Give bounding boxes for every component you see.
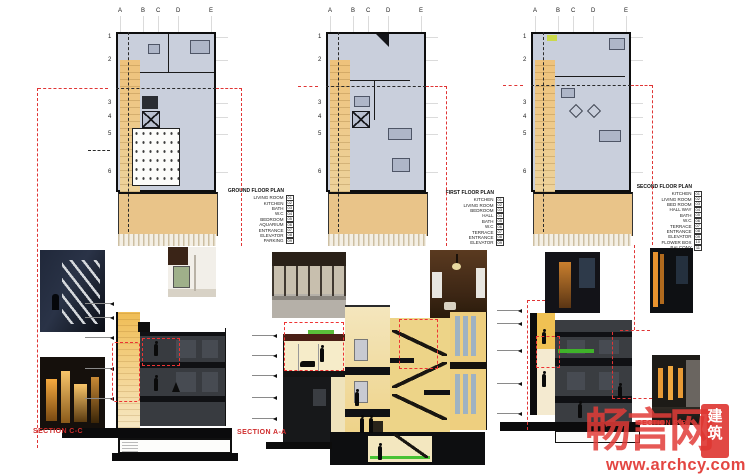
- interior-wall: [140, 72, 214, 73]
- stair-void: [352, 111, 370, 128]
- legend-second-floor: SECOND FLOOR PLAN KITCHEN 01 LIVING ROOM…: [622, 184, 702, 250]
- stair-treads: [62, 260, 100, 324]
- level-marker: [85, 337, 113, 338]
- window-strip: [455, 374, 460, 414]
- section-reference-line: [631, 85, 652, 86]
- grid-letter: D: [386, 8, 390, 14]
- legend-title: FIRST FLOOR PLAN: [424, 190, 504, 196]
- photo-dark-stair: [545, 252, 600, 313]
- table-furniture: [392, 158, 410, 172]
- legend-item-label: BATH: [272, 206, 284, 211]
- lit-doorway: [559, 262, 571, 308]
- photo-reference-line: [612, 398, 652, 399]
- legend-item-label: TERRACE: [670, 224, 692, 229]
- person-silhouette: [369, 418, 373, 433]
- section-line-vertical: [128, 32, 129, 232]
- floor-lamp: [172, 382, 180, 392]
- section-reference-line: [38, 88, 108, 89]
- grid-number: 6: [318, 169, 321, 175]
- legend-item-label: BATH: [482, 219, 494, 224]
- window-strip: [471, 374, 476, 414]
- legend-item-label: TERRACE: [472, 230, 494, 235]
- basement-stair: [394, 434, 428, 458]
- grid-number: 4: [108, 114, 111, 120]
- level-marker: [252, 418, 276, 419]
- section-cut-line: [116, 88, 216, 89]
- grid-letter-row: ABCDE: [108, 8, 248, 16]
- grid-number: 2: [523, 57, 526, 63]
- pendant-lamp: [452, 263, 461, 270]
- stair-void: [142, 111, 160, 128]
- level-marker: [85, 303, 113, 304]
- level-marker: [497, 310, 521, 311]
- level-marker: [252, 355, 276, 356]
- legend-item-label: FLOWER BOX: [662, 240, 692, 245]
- grid-number: 5: [108, 131, 111, 137]
- section-reference-line: [446, 86, 447, 246]
- courtyard-area: [118, 192, 218, 236]
- window: [313, 389, 326, 406]
- green-label-bar: [558, 349, 594, 353]
- grid-letter: C: [571, 8, 575, 14]
- grid-number-column: 123456: [318, 8, 326, 248]
- green-roof-patch: [547, 35, 557, 41]
- window: [579, 258, 595, 288]
- legend-list: KITCHEN 01 LIVING ROOM 02 BEDROOM 03 HAL…: [424, 197, 504, 246]
- legend-item-label: W.C: [683, 218, 692, 223]
- parking-hatch-area: [132, 128, 180, 186]
- legend-item-label: BEDROOM: [260, 217, 283, 222]
- floor-slab: [345, 367, 390, 375]
- legend-item-label: AQUARIUM: [259, 222, 283, 227]
- section-reference-line: [527, 300, 545, 301]
- interior-wall: [168, 34, 169, 72]
- basement-box: [118, 438, 232, 454]
- photo-reference-line: [634, 245, 635, 330]
- legend-item-label: BATH: [680, 213, 692, 218]
- window: [676, 256, 688, 284]
- interior-wall: [350, 80, 410, 81]
- level-marker: [252, 335, 276, 336]
- grid-number: 4: [318, 114, 321, 120]
- level-marker: [497, 350, 521, 351]
- legend-item-label: KITCHEN: [474, 197, 494, 202]
- legend-list: KITCHEN 01 LIVING ROOM 02 BED ROOM 03 HA…: [622, 191, 702, 250]
- legend-item-label: BALCONY: [670, 245, 692, 250]
- sofa-furniture: [388, 128, 412, 140]
- legend-item-label: ENTRANCE: [259, 228, 284, 233]
- person-silhouette: [52, 294, 59, 310]
- facade-edge: [225, 328, 231, 426]
- person-silhouette: [542, 374, 546, 387]
- grid-letter-row: ABCDE: [318, 8, 458, 16]
- section-reference-line: [298, 86, 318, 87]
- grid-letter: D: [591, 8, 595, 14]
- level-marker: [497, 383, 521, 384]
- floor-slab: [450, 362, 487, 369]
- parapet: [138, 322, 150, 332]
- legend-item: PARKING 09: [214, 238, 294, 243]
- driveway-stripes: [118, 234, 216, 246]
- basement-mass: [330, 432, 485, 465]
- stair-triangle: [376, 34, 389, 47]
- legend-item-label: HALL: [482, 213, 493, 218]
- level-marker: [252, 375, 276, 376]
- lower-dark-mass: [283, 377, 331, 443]
- stair-flight: [392, 394, 447, 420]
- wood-wardrobe: [168, 247, 188, 265]
- kitchen-counter: [561, 88, 575, 98]
- grid-number-column: 123456: [108, 8, 116, 248]
- grid-letter: B: [351, 8, 355, 14]
- level-marker: [497, 323, 521, 324]
- legend-item-number: 09: [286, 238, 294, 244]
- section-cc-label: SECTION C-C: [33, 428, 83, 435]
- light-strip: [653, 252, 658, 307]
- courtyard-area: [533, 192, 633, 236]
- person-silhouette: [378, 446, 382, 460]
- floor-slab: [345, 409, 390, 417]
- grid-number: 3: [523, 100, 526, 106]
- floor-slab: [140, 332, 225, 336]
- window: [567, 372, 585, 390]
- grid-number: 5: [318, 131, 321, 137]
- chair: [444, 302, 456, 310]
- person-silhouette: [154, 378, 158, 391]
- cut-line-stub: [88, 150, 110, 151]
- window: [476, 268, 485, 298]
- grid-letter: D: [176, 8, 180, 14]
- lamp: [668, 366, 673, 400]
- grid-number: 5: [523, 131, 526, 137]
- legend-item-label: ENTRANCE: [469, 235, 494, 240]
- architectural-presentation-sheet: ABCDE 123456 ABCDE 123456: [0, 0, 750, 476]
- stair-core-strip: [330, 60, 350, 192]
- level-marker: [497, 413, 521, 414]
- window: [202, 340, 218, 358]
- highlight-box: [284, 322, 344, 371]
- ground-slab: [62, 428, 232, 438]
- window: [599, 340, 619, 354]
- person-silhouette: [360, 418, 364, 433]
- bed-furniture: [190, 40, 210, 54]
- highlight-box: [142, 338, 180, 366]
- window-strip: [463, 316, 468, 356]
- level-marker: [85, 398, 113, 399]
- watermark-url: www.archcy.com: [606, 456, 746, 475]
- window-strip: [463, 374, 468, 414]
- section-reference-line: [241, 88, 242, 246]
- bed-furniture: [609, 38, 625, 50]
- driveway-stripes: [533, 234, 631, 246]
- section-reference-line: [652, 85, 653, 245]
- grid-number: 4: [523, 114, 526, 120]
- photo-reference-line: [620, 330, 650, 331]
- foundation-band: [112, 453, 238, 461]
- legend-item-label: LIVING ROOM: [662, 197, 692, 202]
- floor-slab: [140, 396, 225, 402]
- photo-reference-line: [612, 332, 613, 398]
- legend-item-label: BEDROOM: [470, 208, 493, 213]
- grid-letter: A: [118, 8, 122, 14]
- grid-letter: C: [156, 8, 160, 14]
- section-line-vertical: [338, 32, 339, 232]
- section-reference-line: [527, 300, 528, 430]
- grid-letter: C: [366, 8, 370, 14]
- level-marker: [85, 368, 113, 369]
- floor-line: [272, 296, 346, 300]
- section-reference-line: [216, 88, 242, 89]
- legend-first-floor: FIRST FLOOR PLAN KITCHEN 01 LIVING ROOM …: [424, 190, 504, 246]
- legend-item-label: ELEVATOR: [668, 234, 691, 239]
- window: [354, 339, 368, 361]
- section-reference-line: [426, 86, 447, 87]
- grid-number: 1: [318, 34, 321, 40]
- window-strip: [471, 316, 476, 356]
- grid-number: 2: [318, 57, 321, 63]
- kitchen-counter: [354, 96, 370, 107]
- driveway-stripes: [328, 234, 426, 246]
- legend-item-label: LIVING ROOM: [254, 195, 284, 200]
- watermark-seal: 建筑: [701, 404, 729, 458]
- basement-stairs: [122, 441, 138, 452]
- grid-letter: E: [419, 8, 423, 14]
- lamp: [658, 368, 663, 398]
- lit-window: [74, 384, 87, 422]
- legend-item-number: 09: [496, 240, 504, 246]
- floor: [168, 289, 216, 297]
- grid-letter: A: [533, 8, 537, 14]
- legend-item-number: 11: [694, 245, 702, 251]
- legend-item-label: ENTRANCE: [667, 229, 692, 234]
- legend-item-label: PARKING: [264, 238, 284, 243]
- person-silhouette: [578, 404, 582, 418]
- legend-list: LIVING ROOM 01 KITCHEN 02 BATH 03 W.C 04…: [214, 195, 294, 244]
- legend-item-label: KITCHEN: [264, 201, 284, 206]
- hall-strip: [331, 377, 345, 433]
- legend-item-label: ELEVATOR: [470, 240, 493, 245]
- courtyard-area: [328, 192, 428, 236]
- glass-doors: [272, 266, 346, 296]
- legend-item-label: LIVING ROOM: [464, 203, 494, 208]
- grid-number: 6: [523, 169, 526, 175]
- floor-slab: [555, 332, 632, 337]
- section-aa-label: SECTION A-A: [237, 429, 287, 436]
- watermark-logo-text: 畅言网: [585, 402, 711, 458]
- legend-item-label: W.C: [275, 211, 284, 216]
- grid-number: 6: [108, 169, 111, 175]
- section-reference-line: [37, 88, 38, 448]
- lamp: [678, 368, 683, 398]
- level-marker: [85, 317, 113, 318]
- highlight-box: [536, 336, 560, 368]
- center-tower: [345, 305, 390, 437]
- grid-letter: E: [624, 8, 628, 14]
- level-marker: [252, 397, 276, 398]
- photo-alley-night: [650, 248, 693, 313]
- window: [173, 266, 190, 288]
- grid-number: 1: [108, 34, 111, 40]
- grid-number: 2: [108, 57, 111, 63]
- floor-slab: [555, 358, 632, 366]
- stair-core-strip: [535, 60, 555, 192]
- highlight-box: [112, 342, 140, 402]
- legend-item-label: BED ROOM: [667, 202, 692, 207]
- photo-stairwell-interior: [40, 250, 105, 332]
- grid-letter: B: [556, 8, 560, 14]
- light-strip: [660, 254, 664, 304]
- window: [599, 372, 619, 390]
- section-line-vertical: [543, 32, 544, 232]
- grid-number: 1: [523, 34, 526, 40]
- lit-window: [61, 371, 70, 423]
- legend-item-label: ELEVATOR: [260, 233, 283, 238]
- window: [202, 372, 218, 392]
- grid-letter: E: [209, 8, 213, 14]
- interior-wall: [555, 76, 625, 77]
- fixture: [148, 44, 160, 54]
- section-reference-line: [503, 85, 523, 86]
- lit-window: [46, 379, 57, 421]
- lit-window: [91, 377, 99, 423]
- ground-slab: [266, 442, 332, 449]
- legend-ground-floor: GROUND FLOOR PLAN LIVING ROOM 01 KITCHEN…: [214, 188, 294, 244]
- legend-item: ELEVATOR 09: [424, 240, 504, 245]
- person-silhouette: [355, 392, 359, 406]
- window: [432, 272, 442, 298]
- highlight-box: [399, 319, 438, 369]
- window-strip: [455, 316, 460, 356]
- legend-item-label: HALL WAY: [669, 207, 691, 212]
- landing-slab: [424, 390, 450, 395]
- grid-number: 3: [108, 100, 111, 106]
- legend-title: SECOND FLOOR PLAN: [622, 184, 702, 190]
- grid-letter: A: [328, 8, 332, 14]
- sofa-furniture: [599, 130, 621, 142]
- grid-letter-row: ABCDE: [523, 8, 663, 16]
- section-cut-line: [531, 85, 631, 86]
- grid-number-column: 123456: [523, 8, 531, 248]
- legend-title: GROUND FLOOR PLAN: [214, 188, 294, 194]
- section-cut-line: [326, 86, 426, 87]
- legend-item-label: W.C: [485, 224, 494, 229]
- right-wing: [450, 312, 487, 430]
- photo-bedroom-interior: [168, 247, 216, 297]
- grid-letter: B: [141, 8, 145, 14]
- wall-corner: [194, 255, 196, 291]
- grid-number: 3: [318, 100, 321, 106]
- elevator-shaft: [142, 96, 158, 109]
- legend-item-label: KITCHEN: [672, 191, 692, 196]
- photo-living-room: [272, 252, 346, 318]
